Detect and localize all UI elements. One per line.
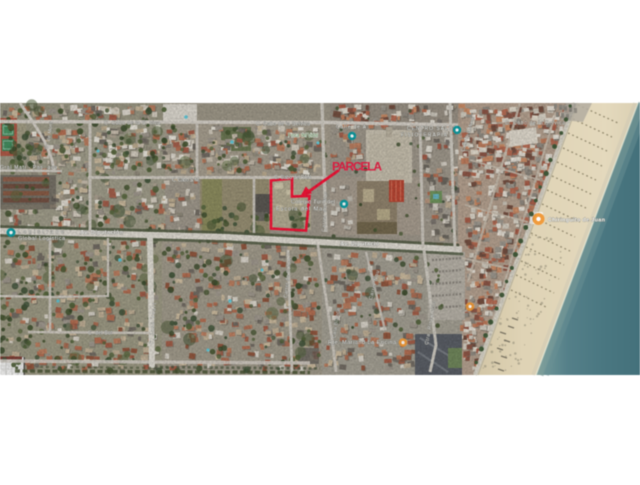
svg-text:Chiringuito de Juan: Chiringuito de Juan [548, 218, 606, 224]
